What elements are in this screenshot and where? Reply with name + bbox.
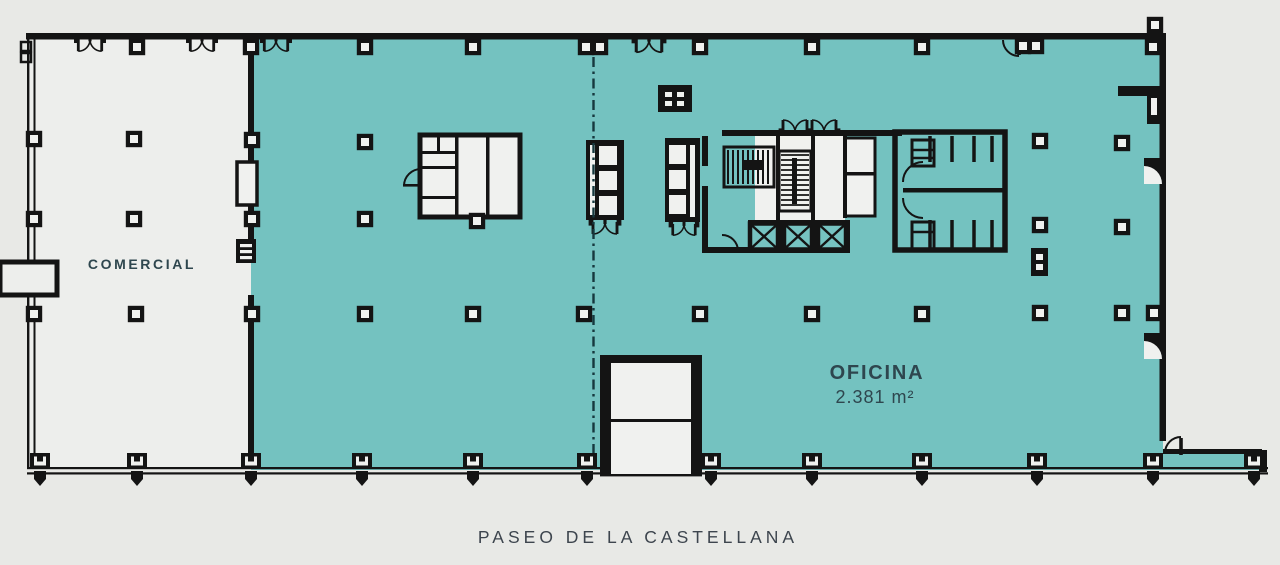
column-symbol [1147, 17, 1163, 33]
entrance-lobby [600, 355, 702, 476]
commercial-area [29, 36, 251, 468]
column-symbol [692, 306, 708, 322]
column-symbol [357, 306, 373, 322]
column-symbol [914, 39, 930, 55]
column-symbol [592, 39, 608, 55]
column-symbol [465, 39, 481, 55]
column-symbol [357, 134, 373, 150]
column-symbol [1145, 39, 1161, 55]
column-symbol [1146, 305, 1162, 321]
column-symbol [576, 306, 592, 322]
left-wall-inner [34, 36, 36, 466]
column-symbol [126, 131, 142, 147]
street-label: PASEO DE LA CASTELLANA [478, 527, 798, 547]
elevator-symbol [750, 224, 778, 250]
riser-box [658, 85, 692, 112]
column-symbol [465, 306, 481, 322]
column-symbol [1032, 305, 1048, 321]
service-room-block [403, 135, 520, 217]
column-symbol [129, 39, 145, 55]
column-symbol [578, 39, 594, 55]
floor-plan: COMERCIAL OFICINA 2.381 m² PASEO DE LA C… [0, 0, 1280, 565]
elevator-bank-1 [586, 140, 624, 234]
elevator-bank-2 [665, 138, 700, 235]
divider-opening [237, 162, 257, 205]
top-wall [26, 33, 1166, 40]
core-elevators [748, 220, 850, 253]
column-symbol [692, 39, 708, 55]
commercial-notch [0, 262, 57, 295]
commercial-label: COMERCIAL [88, 256, 196, 272]
column-symbol [357, 211, 373, 227]
column-symbol [804, 306, 820, 322]
left-wall-outer [27, 33, 29, 469]
column-symbol [26, 306, 42, 322]
column-symbol [804, 39, 820, 55]
office-area-label: 2.381 m² [835, 387, 914, 407]
column-symbol [1032, 133, 1048, 149]
office-label: OFICINA [830, 362, 925, 384]
divider-riser [236, 239, 256, 263]
wall-door-box [1144, 333, 1164, 359]
column-symbol [243, 39, 259, 55]
elevator-symbol [784, 224, 812, 250]
column-symbol [126, 211, 142, 227]
column-symbol [357, 39, 373, 55]
riser-small [1031, 248, 1048, 276]
column-symbol [244, 132, 260, 148]
column-symbol [914, 306, 930, 322]
column-symbol [1114, 135, 1130, 151]
column-symbol [1114, 219, 1130, 235]
column-symbol [469, 213, 485, 229]
column-symbol [244, 306, 260, 322]
column-symbol [128, 306, 144, 322]
column-symbol [1032, 217, 1048, 233]
elevator-symbol [818, 224, 846, 250]
column-symbol [244, 211, 260, 227]
floor-plan-page: COMERCIAL OFICINA 2.381 m² PASEO DE LA C… [0, 0, 1280, 565]
column-symbol [26, 131, 42, 147]
column-symbol [1114, 305, 1130, 321]
column-symbol [26, 211, 42, 227]
column-symbol [1028, 38, 1044, 54]
wall-door-box [1144, 158, 1164, 184]
